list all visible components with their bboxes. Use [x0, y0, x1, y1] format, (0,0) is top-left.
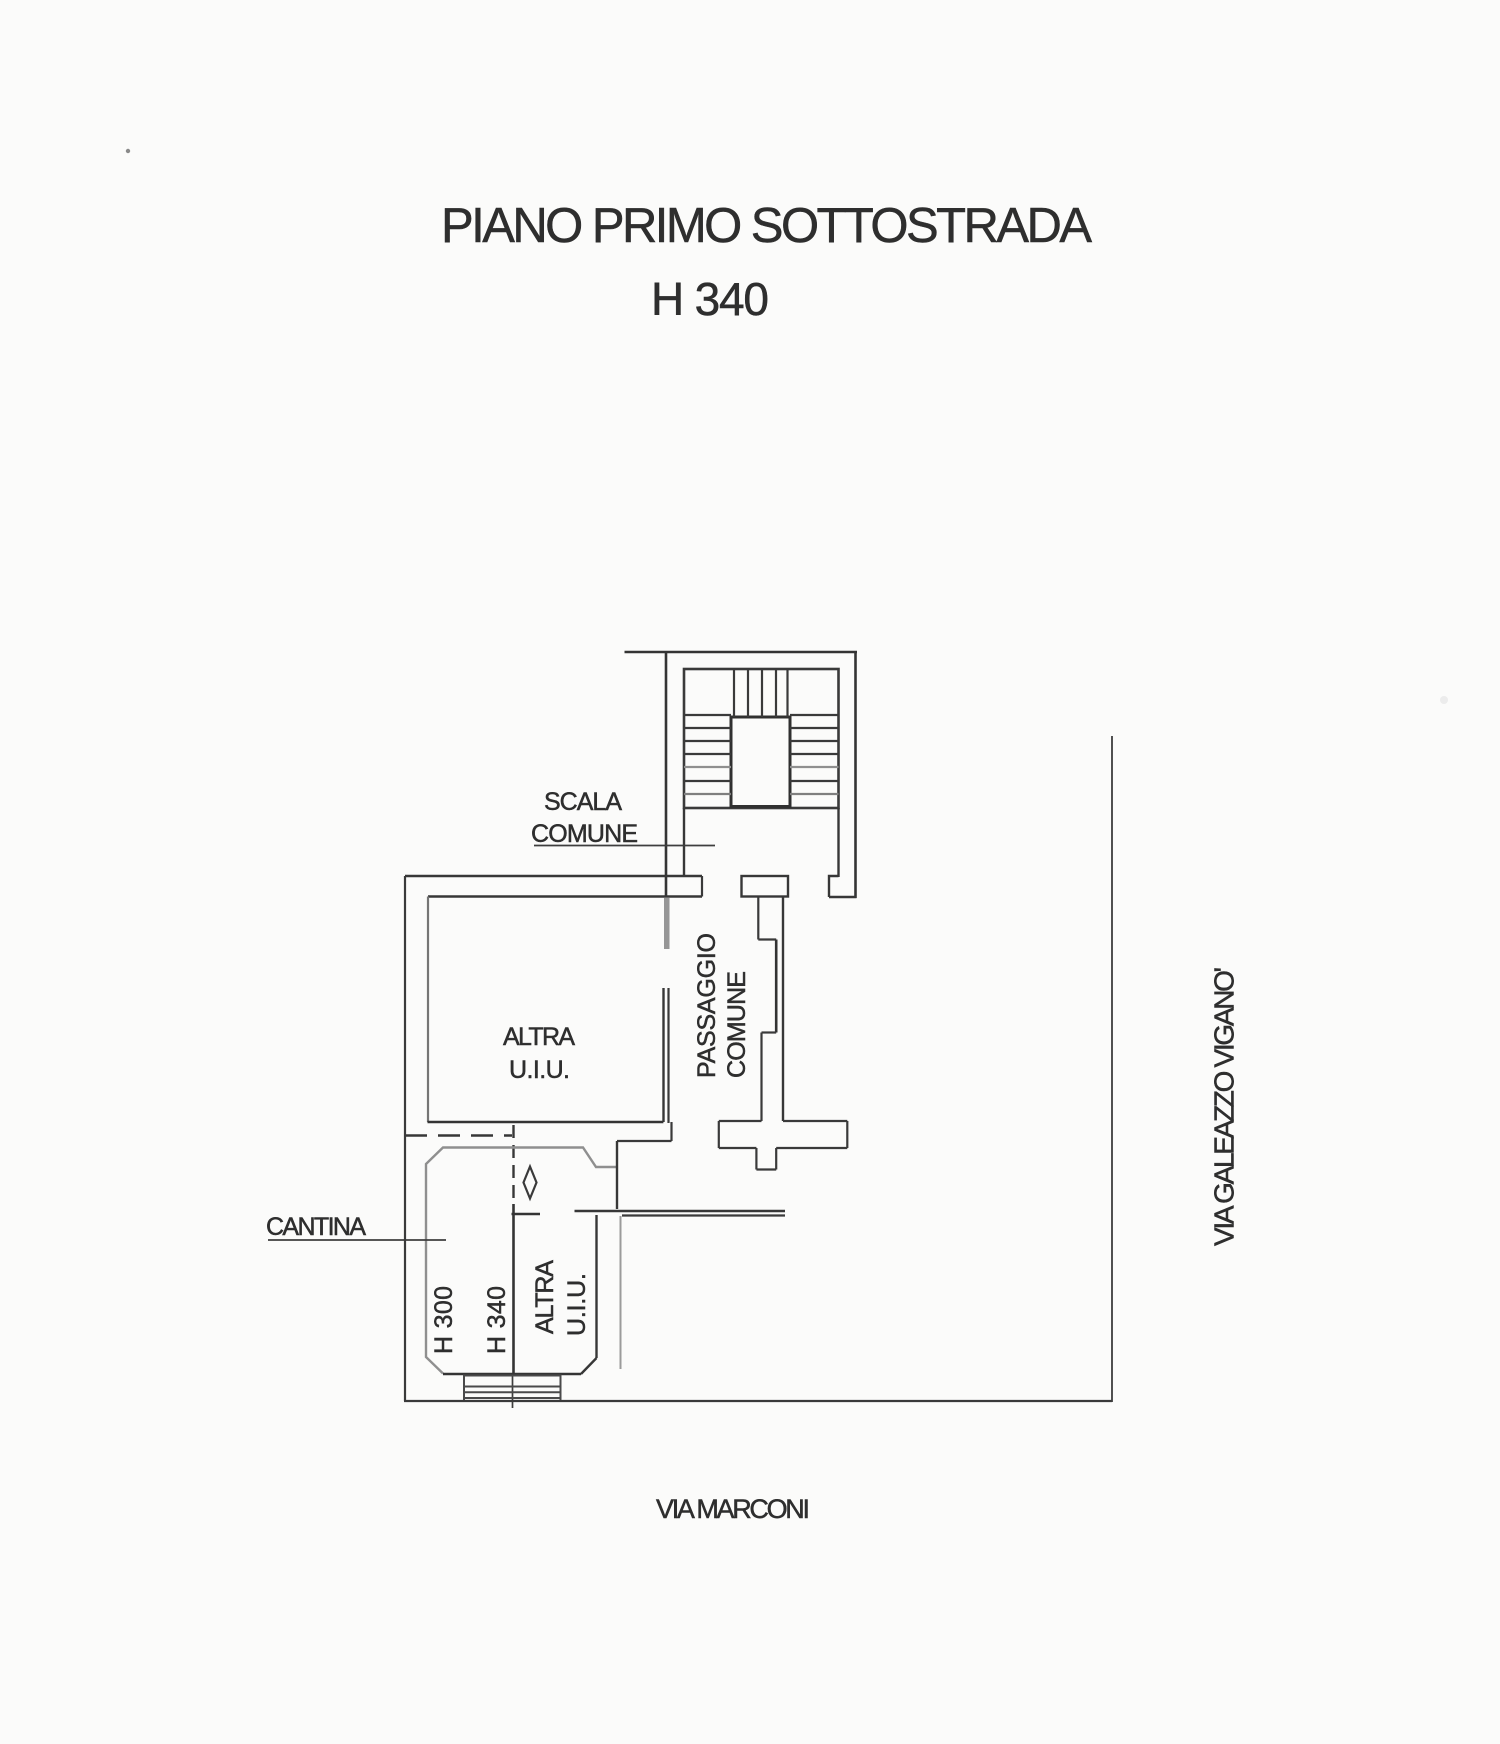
- svg-text:PASSAGGIO: PASSAGGIO: [693, 933, 721, 1078]
- svg-text:U.I.U.: U.I.U.: [509, 1056, 570, 1084]
- svg-text:PIANO PRIMO SOTTOSTRADA: PIANO PRIMO SOTTOSTRADA: [441, 199, 1092, 253]
- svg-text:U.I.U.: U.I.U.: [563, 1273, 591, 1336]
- svg-text:ALTRA: ALTRA: [531, 1260, 559, 1334]
- svg-text:H 340: H 340: [651, 273, 769, 325]
- svg-text:VIA GALEAZZO VIGANO': VIA GALEAZZO VIGANO': [1209, 967, 1240, 1246]
- svg-text:ALTRA: ALTRA: [503, 1023, 575, 1051]
- svg-text:SCALA: SCALA: [544, 788, 622, 816]
- svg-text:VIA MARCONI: VIA MARCONI: [656, 1494, 810, 1524]
- svg-text:COMUNE: COMUNE: [531, 820, 638, 848]
- svg-text:H 300: H 300: [430, 1286, 458, 1354]
- svg-text:COMUNE: COMUNE: [723, 971, 751, 1078]
- svg-text:H 340: H 340: [483, 1286, 511, 1354]
- svg-text:CANTINA: CANTINA: [266, 1213, 366, 1241]
